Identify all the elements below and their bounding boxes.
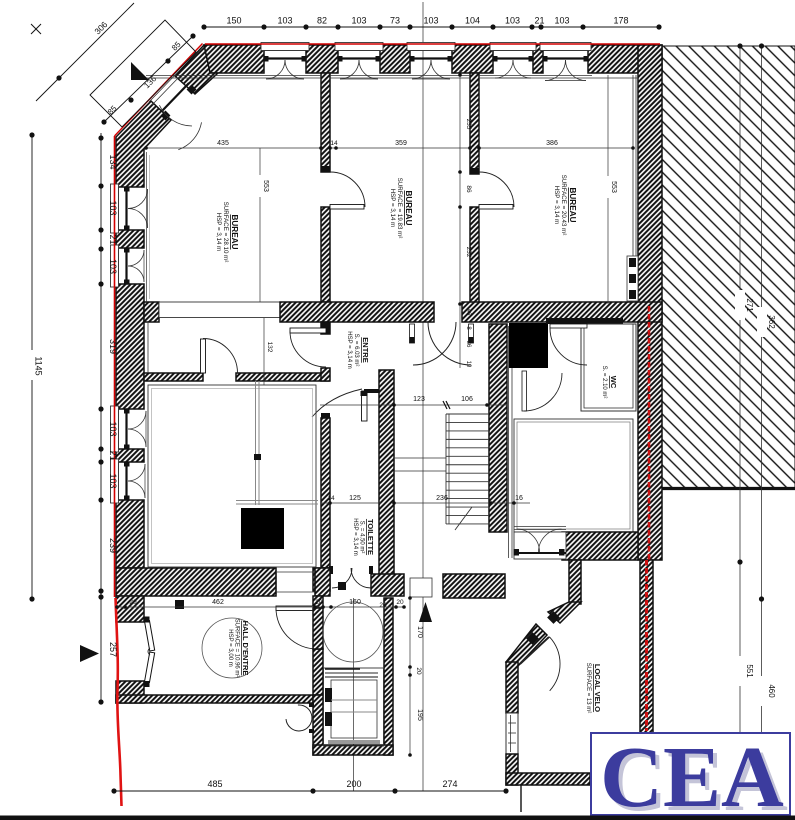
svg-text:21: 21: [108, 234, 118, 244]
svg-text:TOILETTE: TOILETTE: [366, 519, 375, 555]
svg-text:103: 103: [351, 16, 366, 26]
svg-text:103: 103: [108, 259, 118, 274]
svg-text:103: 103: [108, 200, 118, 215]
svg-text:104: 104: [465, 16, 480, 26]
svg-text:BUREAU: BUREAU: [230, 214, 239, 249]
svg-text:257: 257: [108, 642, 118, 657]
svg-text:134: 134: [108, 154, 118, 169]
svg-text:HSP = 3,14 m: HSP = 3,14 m: [346, 331, 352, 368]
svg-text:S. = 2.10 m²: S. = 2.10 m²: [601, 366, 607, 399]
svg-text:86: 86: [465, 341, 471, 348]
svg-text:553: 553: [610, 181, 617, 193]
svg-text:73: 73: [390, 16, 400, 26]
svg-text:14: 14: [330, 140, 338, 147]
svg-text:232: 232: [465, 247, 472, 258]
svg-text:SURFACE = 20.43 m²: SURFACE = 20.43 m²: [560, 175, 567, 236]
svg-text:HSP = 3,14 m: HSP = 3,14 m: [352, 518, 358, 555]
svg-text:103: 103: [108, 421, 118, 436]
svg-text:82: 82: [317, 16, 327, 26]
svg-text:103: 103: [505, 16, 520, 26]
svg-text:170: 170: [416, 626, 423, 638]
svg-text:195: 195: [416, 709, 423, 721]
svg-text:SURFACE = 13 m²: SURFACE = 13 m²: [585, 663, 591, 714]
svg-text:271: 271: [745, 298, 754, 312]
svg-text:86: 86: [465, 185, 472, 193]
svg-text:19: 19: [465, 361, 471, 368]
svg-text:178: 178: [613, 16, 628, 26]
svg-text:20: 20: [315, 599, 323, 606]
svg-text:235: 235: [465, 119, 472, 130]
svg-text:359: 359: [395, 140, 407, 147]
svg-text:551: 551: [745, 664, 754, 678]
svg-text:LOCAL VELO: LOCAL VELO: [593, 664, 602, 712]
svg-text:WC: WC: [609, 376, 618, 389]
svg-text:ENTRE: ENTRE: [361, 337, 370, 362]
svg-text:123: 123: [413, 396, 425, 403]
svg-text:HSP = 3,00 m: HSP = 3,00 m: [227, 629, 233, 666]
svg-text:132: 132: [266, 342, 273, 353]
svg-text:CEA: CEA: [600, 728, 784, 820]
svg-text:20: 20: [415, 667, 422, 675]
svg-text:BUREAU: BUREAU: [568, 187, 577, 222]
svg-text:SURFACE = 10.96 m²: SURFACE = 10.96 m²: [234, 619, 240, 678]
svg-text:362: 362: [767, 315, 776, 329]
svg-text:SURFACE = 28.10 m²: SURFACE = 28.10 m²: [222, 202, 229, 263]
svg-text:485: 485: [207, 779, 222, 789]
svg-text:SURFACE = 19.83 m²: SURFACE = 19.83 m²: [396, 178, 403, 239]
svg-text:103: 103: [108, 473, 118, 488]
svg-text:319: 319: [108, 339, 118, 354]
svg-text:103: 103: [423, 16, 438, 26]
svg-text:21: 21: [108, 450, 118, 460]
svg-text:21: 21: [534, 16, 544, 26]
svg-text:106: 106: [461, 396, 473, 403]
svg-text:HALL D’ENTRE: HALL D’ENTRE: [241, 621, 250, 676]
svg-text:20: 20: [396, 599, 404, 606]
svg-text:150: 150: [226, 16, 241, 26]
svg-text:200: 200: [346, 779, 361, 789]
svg-text:125: 125: [349, 495, 361, 502]
svg-text:16: 16: [515, 495, 523, 502]
svg-text:103: 103: [277, 16, 292, 26]
svg-text:HSP = 3,14 m: HSP = 3,14 m: [389, 189, 396, 228]
svg-text:46: 46: [465, 309, 471, 316]
svg-text:14: 14: [327, 495, 335, 502]
svg-text:553: 553: [262, 180, 269, 192]
svg-text:274: 274: [442, 779, 457, 789]
svg-text:S. = 4.50 m²: S. = 4.50 m²: [359, 521, 365, 554]
svg-text:236: 236: [436, 495, 448, 502]
svg-text:435: 435: [217, 140, 229, 147]
svg-text:20: 20: [379, 602, 387, 609]
svg-text:BUREAU: BUREAU: [404, 190, 413, 225]
svg-text:S. = 6.03 m²: S. = 6.03 m²: [353, 334, 359, 367]
svg-text:239: 239: [108, 538, 118, 553]
svg-text:160: 160: [349, 599, 361, 606]
svg-text:103: 103: [554, 16, 569, 26]
svg-text:20: 20: [129, 599, 137, 606]
svg-text:462: 462: [212, 599, 224, 606]
svg-text:1145: 1145: [34, 356, 44, 375]
svg-text:HSP = 3,14 m: HSP = 3,14 m: [215, 213, 222, 252]
svg-text:386: 386: [546, 140, 558, 147]
svg-text:460: 460: [767, 684, 776, 698]
svg-text:HSP = 3,14 m: HSP = 3,14 m: [553, 186, 560, 225]
